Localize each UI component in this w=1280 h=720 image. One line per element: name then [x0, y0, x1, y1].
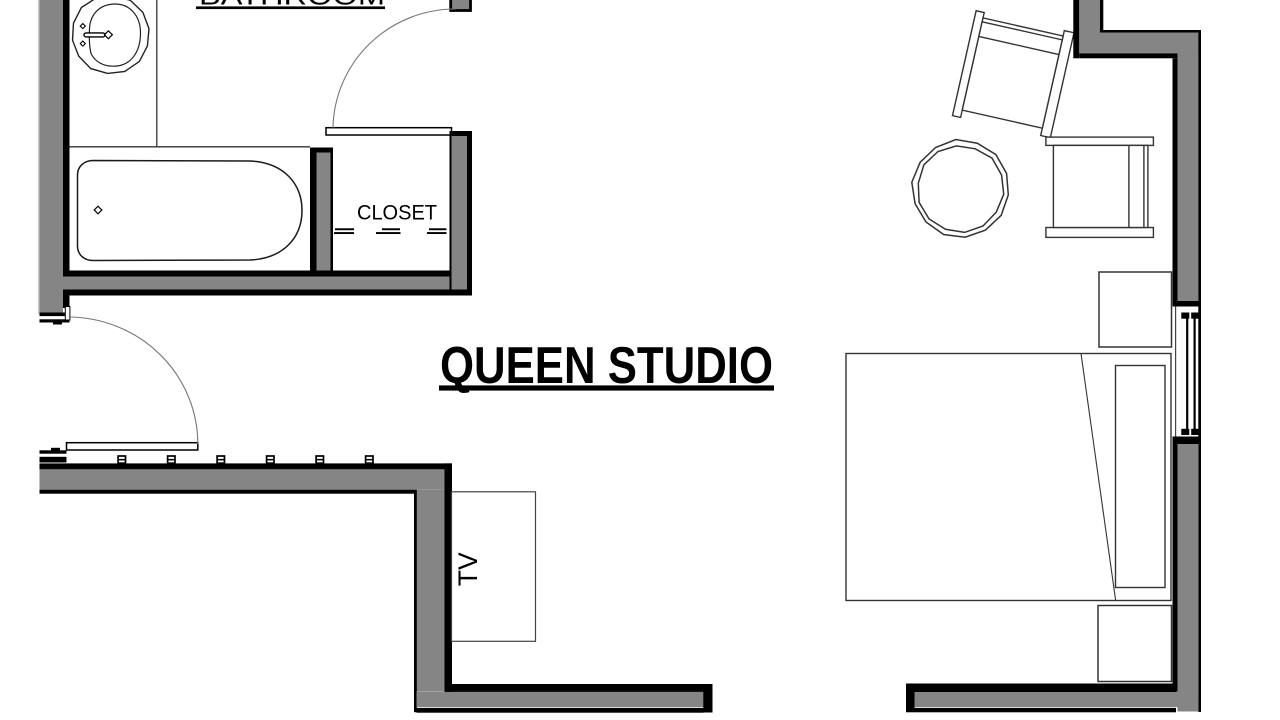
svg-text:CLOSET: CLOSET [357, 201, 437, 225]
svg-text:QUEEN STUDIO: QUEEN STUDIO [440, 336, 773, 394]
svg-text:TV: TV [453, 552, 483, 586]
